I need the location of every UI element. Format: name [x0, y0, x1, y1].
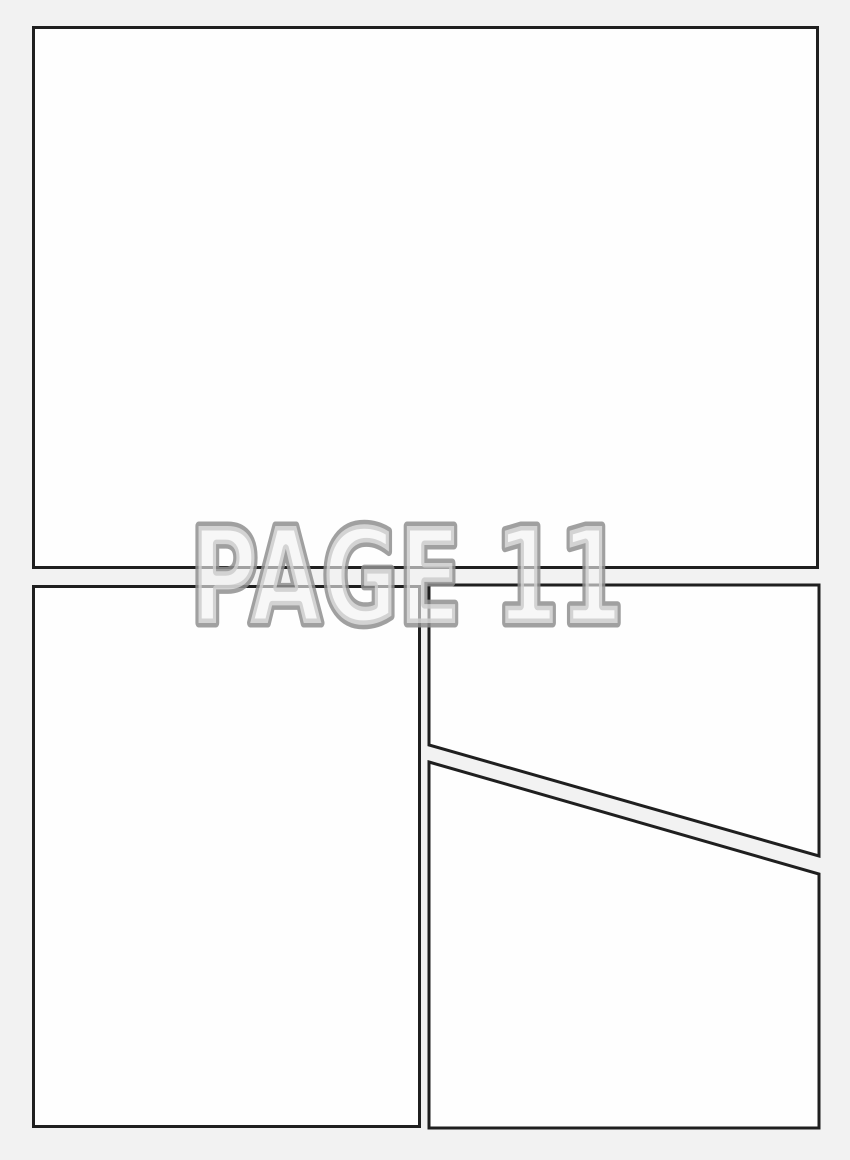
panel-bottom-right-group: [429, 585, 819, 1128]
panel-bottom-left: [32, 585, 421, 1128]
panel-top: [32, 26, 819, 569]
comic-page-template: PAGE 11: [0, 0, 850, 1160]
